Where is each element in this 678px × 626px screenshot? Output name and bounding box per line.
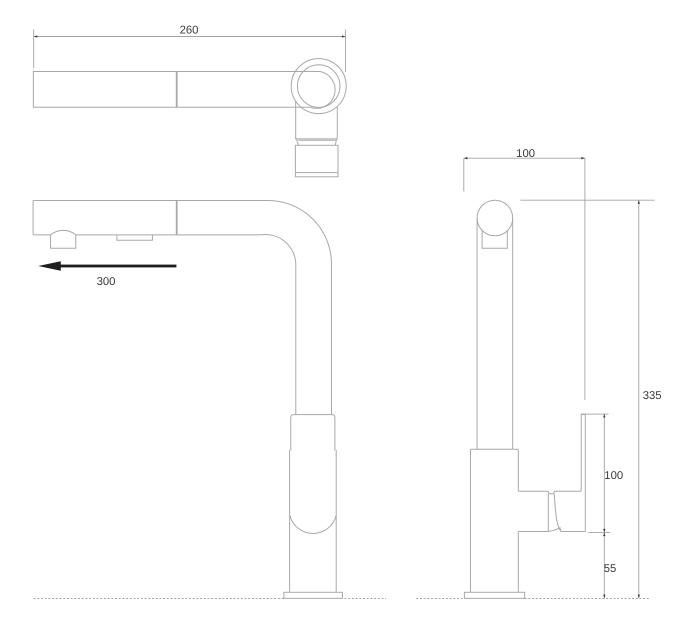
svg-text:260: 260	[180, 25, 199, 37]
svg-text:100: 100	[604, 470, 623, 482]
svg-text:300: 300	[97, 276, 116, 288]
svg-text:100: 100	[516, 148, 535, 160]
svg-text:335: 335	[643, 390, 662, 402]
svg-text:55: 55	[604, 563, 617, 575]
